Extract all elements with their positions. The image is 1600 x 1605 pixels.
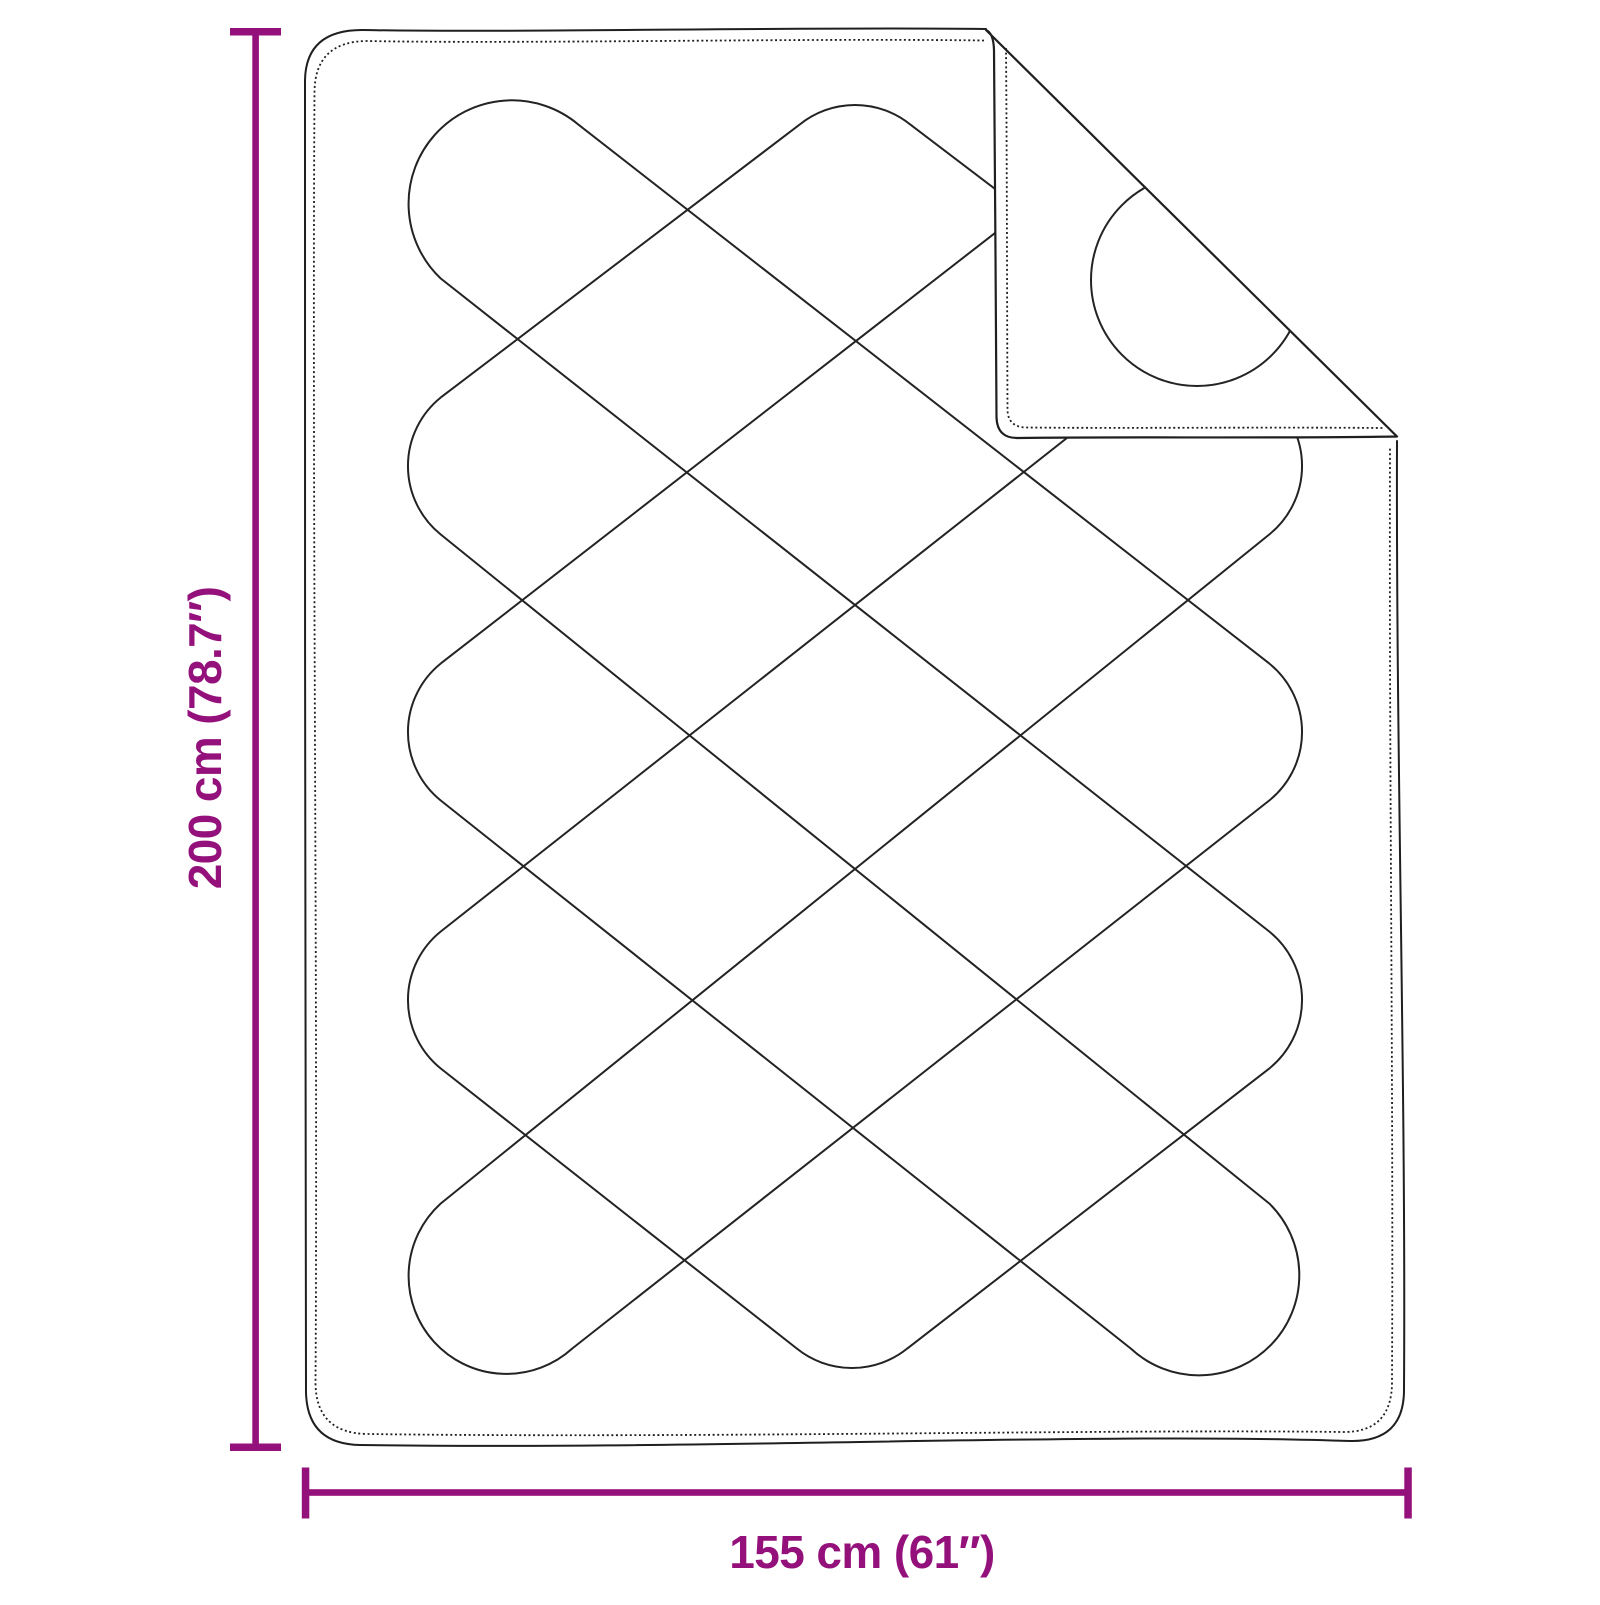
- svg-text:155 cm (61″): 155 cm (61″): [729, 1526, 994, 1578]
- svg-text:200 cm (78.7″): 200 cm (78.7″): [179, 587, 231, 890]
